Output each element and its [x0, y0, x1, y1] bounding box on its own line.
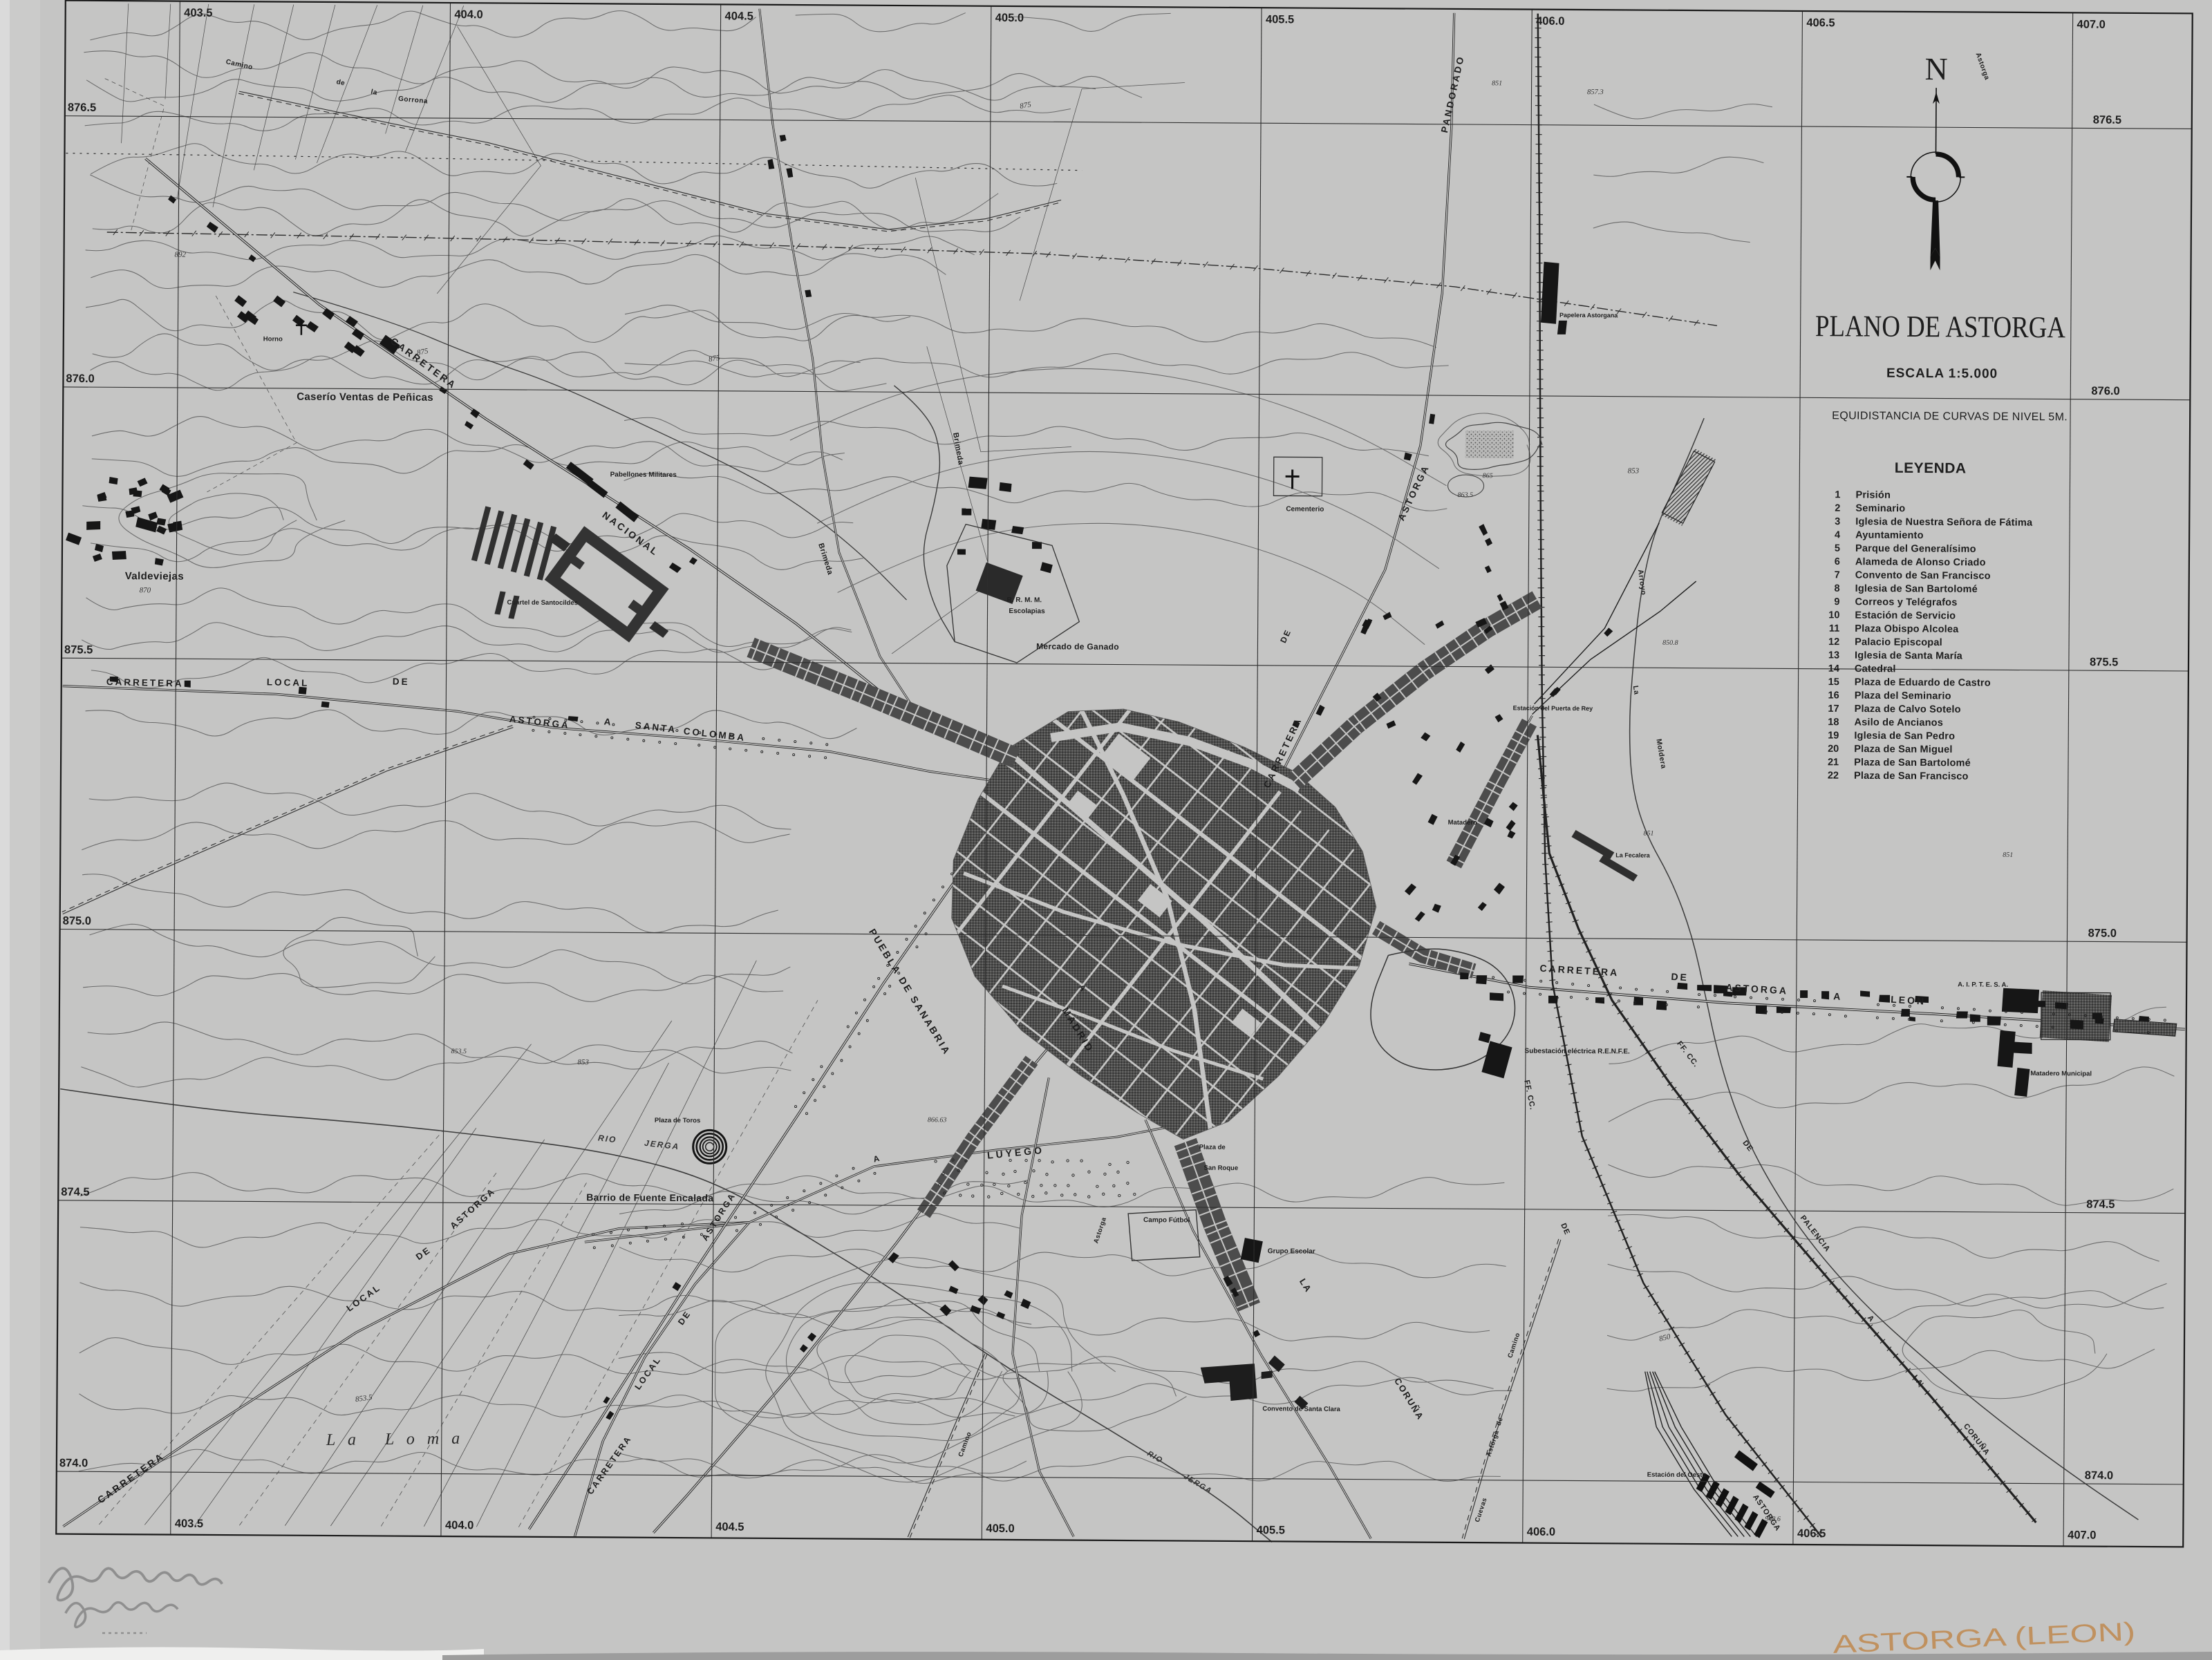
svg-text:R. R. M. M.: R. R. M. M.	[1006, 596, 1042, 604]
svg-text:857.3: 857.3	[1587, 88, 1604, 96]
svg-text:9: 9	[1834, 596, 1839, 607]
svg-text:San Roque: San Roque	[1203, 1164, 1238, 1172]
svg-text:Estación de Servicio: Estación de Servicio	[1855, 610, 1956, 622]
svg-text:LEYENDA: LEYENDA	[1895, 460, 1967, 477]
svg-text:851: 851	[2003, 851, 2013, 859]
svg-text:404.5: 404.5	[715, 1520, 744, 1533]
svg-text:20: 20	[1828, 744, 1839, 755]
svg-text:LEON: LEON	[1891, 994, 1927, 1007]
svg-text:Papelera Astorgana: Papelera Astorgana	[1559, 312, 1618, 319]
svg-text:6: 6	[1835, 556, 1840, 567]
svg-text:N: N	[1924, 51, 1948, 86]
svg-text:15: 15	[1828, 677, 1839, 688]
svg-text:Plaza de Toros: Plaza de Toros	[655, 1117, 700, 1124]
svg-text:Matadero: Matadero	[1448, 819, 1477, 827]
svg-text:EQUIDISTANCIA DE CURVAS DE NIV: EQUIDISTANCIA DE CURVAS DE NIVEL 5M.	[1832, 410, 2068, 423]
svg-text:875.5: 875.5	[2090, 656, 2118, 668]
svg-text:865: 865	[1483, 472, 1493, 480]
svg-text:Alameda de Alonso Criado: Alameda de Alonso Criado	[1855, 556, 1986, 568]
svg-text:948.6: 948.6	[1765, 1516, 1781, 1523]
svg-text:17: 17	[1828, 704, 1839, 715]
svg-text:Convento de San Francisco: Convento de San Francisco	[1855, 570, 1991, 582]
svg-text:Campo Fútbol: Campo Fútbol	[1143, 1216, 1190, 1224]
svg-text:7: 7	[1835, 569, 1840, 581]
svg-text:5: 5	[1835, 543, 1840, 554]
svg-text:18: 18	[1828, 717, 1839, 728]
svg-text:A. I. P. T. E. S. A.: A. I. P. T. E. S. A.	[1958, 981, 2008, 988]
svg-text:Caserío Ventas de Peñicas: Caserío Ventas de Peñicas	[297, 391, 433, 404]
svg-text:11: 11	[1829, 623, 1839, 634]
svg-text:876.5: 876.5	[2093, 114, 2121, 126]
svg-text:Escolapias: Escolapias	[1009, 607, 1045, 615]
svg-text:4: 4	[1835, 529, 1840, 540]
svg-text:876.0: 876.0	[66, 372, 94, 385]
svg-text:Plaza de: Plaza de	[1199, 1144, 1226, 1151]
svg-text:Prisión: Prisión	[1855, 489, 1891, 500]
svg-text:Catedral: Catedral	[1855, 663, 1896, 675]
svg-text:876.5: 876.5	[68, 102, 96, 114]
svg-text:Horno: Horno	[263, 335, 283, 343]
svg-text:407.0: 407.0	[2068, 1529, 2096, 1541]
svg-text:870: 870	[140, 586, 151, 594]
svg-text:1: 1	[1835, 489, 1840, 500]
svg-text:16: 16	[1828, 690, 1839, 701]
svg-text:Ayuntamiento: Ayuntamiento	[1855, 530, 1924, 542]
svg-text:874.0: 874.0	[59, 1457, 88, 1469]
svg-text:Plaza de San Francisco: Plaza de San Francisco	[1854, 771, 1969, 782]
svg-text:22: 22	[1828, 771, 1839, 782]
svg-text:403.5: 403.5	[184, 7, 212, 19]
svg-text:405.5: 405.5	[1266, 13, 1294, 26]
svg-text:PLANO DE ASTORGA: PLANO DE ASTORGA	[1815, 309, 2065, 344]
svg-text:863.5: 863.5	[1457, 491, 1473, 499]
svg-text:Pabellones Militares: Pabellones Militares	[610, 471, 677, 479]
svg-text:405.5: 405.5	[1257, 1524, 1285, 1536]
svg-text:Iglesia de San Bartolomé: Iglesia de San Bartolomé	[1855, 583, 1978, 595]
svg-text:875.0: 875.0	[63, 915, 91, 927]
svg-text:Iglesia de Santa María: Iglesia de Santa María	[1855, 650, 1963, 662]
svg-text:19: 19	[1828, 730, 1839, 742]
svg-text:Subestación eléctrica R.E.N.F.: Subestación eléctrica R.E.N.F.E.	[1525, 1048, 1631, 1056]
svg-text:Barrio de Fuente Encalada: Barrio de Fuente Encalada	[586, 1191, 713, 1203]
svg-text:Estación del Oeste: Estación del Oeste	[1647, 1471, 1706, 1480]
svg-text:406.0: 406.0	[1536, 15, 1564, 28]
svg-text:Asilo de Ancianos: Asilo de Ancianos	[1854, 717, 1943, 728]
svg-text:La: La	[1631, 685, 1641, 695]
svg-text:850.8: 850.8	[1662, 639, 1678, 647]
svg-text:Iglesia de San Pedro: Iglesia de San Pedro	[1854, 730, 1955, 742]
svg-text:Seminario: Seminario	[1855, 503, 1905, 514]
svg-text:L a L o m a: L a L o m a	[326, 1430, 464, 1449]
svg-text:875.0: 875.0	[2088, 927, 2117, 939]
svg-text:406.5: 406.5	[1797, 1527, 1826, 1540]
svg-text:853: 853	[577, 1058, 589, 1066]
svg-text:Plaza de Eduardo de Castro: Plaza de Eduardo de Castro	[1855, 677, 1991, 688]
svg-text:21: 21	[1828, 757, 1839, 768]
svg-text:2: 2	[1835, 503, 1840, 514]
svg-text:3: 3	[1835, 516, 1840, 527]
svg-text:14: 14	[1828, 663, 1839, 675]
svg-text:874.5: 874.5	[61, 1186, 89, 1198]
svg-text:407.0: 407.0	[2077, 18, 2105, 30]
svg-text:Plaza del Seminario: Plaza del Seminario	[1855, 690, 1951, 702]
svg-text:406.5: 406.5	[1806, 17, 1835, 29]
svg-text:Plaza Obispo Alcolea: Plaza Obispo Alcolea	[1855, 623, 1959, 635]
svg-text:8: 8	[1835, 583, 1840, 594]
svg-text:10: 10	[1828, 610, 1839, 621]
svg-text:13: 13	[1828, 650, 1839, 661]
svg-text:Estación del Puerta de Rey: Estación del Puerta de Rey	[1513, 704, 1593, 712]
svg-text:403.5: 403.5	[175, 1518, 203, 1530]
svg-text:405.0: 405.0	[995, 12, 1024, 24]
svg-text:Cuartel de Santocildes: Cuartel de Santocildes	[507, 599, 577, 607]
svg-text:Matadero Municipal: Matadero Municipal	[2030, 1070, 2092, 1078]
svg-text:Iglesia de Nuestra Señora de F: Iglesia de Nuestra Señora de Fátima	[1855, 516, 2033, 529]
svg-text:874.0: 874.0	[2085, 1469, 2113, 1482]
svg-text:875.5: 875.5	[64, 643, 93, 656]
svg-text:874.5: 874.5	[2086, 1198, 2115, 1211]
svg-text:406.0: 406.0	[1527, 1526, 1555, 1538]
svg-text:A: A	[1833, 990, 1843, 1002]
svg-text:405.0: 405.0	[986, 1522, 1014, 1535]
svg-text:DE: DE	[393, 677, 410, 688]
svg-text:404.5: 404.5	[725, 10, 753, 22]
svg-text:12: 12	[1828, 636, 1839, 648]
svg-text:Cementerio: Cementerio	[1286, 505, 1324, 513]
svg-text:Grupo Escolar: Grupo Escolar	[1268, 1247, 1315, 1255]
svg-text:DE: DE	[1671, 971, 1689, 983]
svg-text:CARRETERA: CARRETERA	[106, 677, 184, 689]
svg-text:ESCALA 1:5.000: ESCALA 1:5.000	[1886, 366, 1998, 381]
svg-text:Convento de Santa Clara: Convento de Santa Clara	[1262, 1405, 1340, 1413]
svg-text:404.0: 404.0	[445, 1519, 474, 1531]
svg-text:892: 892	[175, 251, 187, 259]
svg-text:Plaza de San Bartolomé: Plaza de San Bartolomé	[1854, 757, 1971, 768]
svg-text:876.0: 876.0	[2091, 385, 2119, 397]
svg-text:Plaza de Calvo Sotelo: Plaza de Calvo Sotelo	[1855, 704, 1961, 715]
svg-text:Mercado de Ganado: Mercado de Ganado	[1036, 641, 1119, 652]
svg-text:LOCAL: LOCAL	[267, 677, 310, 688]
svg-text:Plaza de San Miguel: Plaza de San Miguel	[1854, 744, 1953, 755]
svg-text:Palacio Episcopal: Palacio Episcopal	[1855, 636, 1942, 648]
svg-text:Valdeviejas: Valdeviejas	[125, 570, 184, 583]
svg-text:853: 853	[1628, 466, 1640, 475]
svg-text:853.5: 853.5	[451, 1048, 467, 1055]
svg-text:851: 851	[1643, 830, 1653, 838]
svg-text:851: 851	[1492, 79, 1502, 87]
svg-text:404.0: 404.0	[454, 8, 482, 21]
svg-text:A: A	[603, 716, 613, 727]
svg-text:866.63: 866.63	[928, 1116, 947, 1124]
svg-text:Parque del Generalísimo: Parque del Generalísimo	[1855, 543, 1976, 555]
svg-text:La Fecalera: La Fecalera	[1615, 851, 1651, 858]
svg-text:Correos y Telégrafos: Correos y Telégrafos	[1855, 596, 1957, 608]
